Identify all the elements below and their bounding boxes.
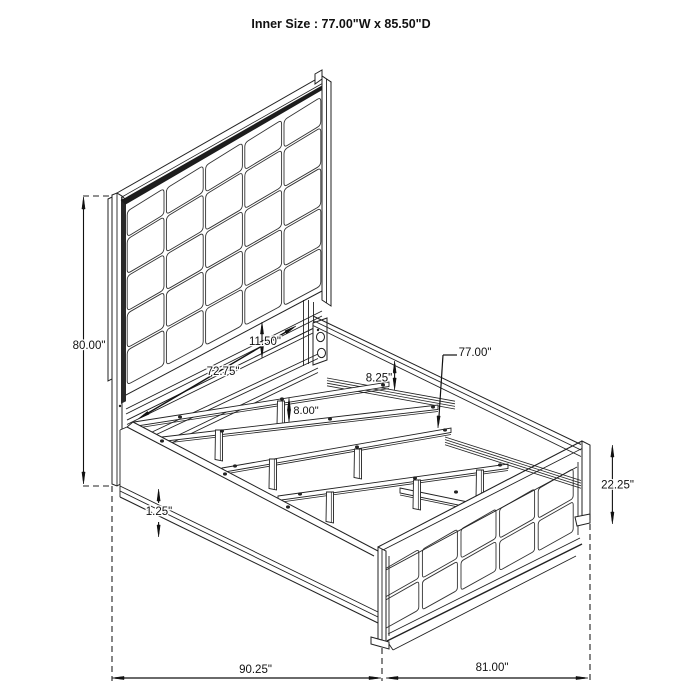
svg-text:8.00": 8.00" [293, 405, 318, 417]
svg-text:8.25": 8.25" [366, 373, 392, 385]
svg-text:80.00": 80.00" [73, 340, 106, 352]
svg-text:72.75": 72.75" [207, 366, 240, 378]
svg-text:1.25": 1.25" [146, 506, 172, 518]
svg-text:11.50": 11.50" [249, 336, 281, 348]
svg-text:22.25": 22.25" [601, 480, 634, 492]
svg-text:77.00": 77.00" [459, 347, 492, 359]
svg-text:81.00": 81.00" [476, 662, 509, 674]
svg-text:90.25": 90.25" [239, 664, 272, 676]
